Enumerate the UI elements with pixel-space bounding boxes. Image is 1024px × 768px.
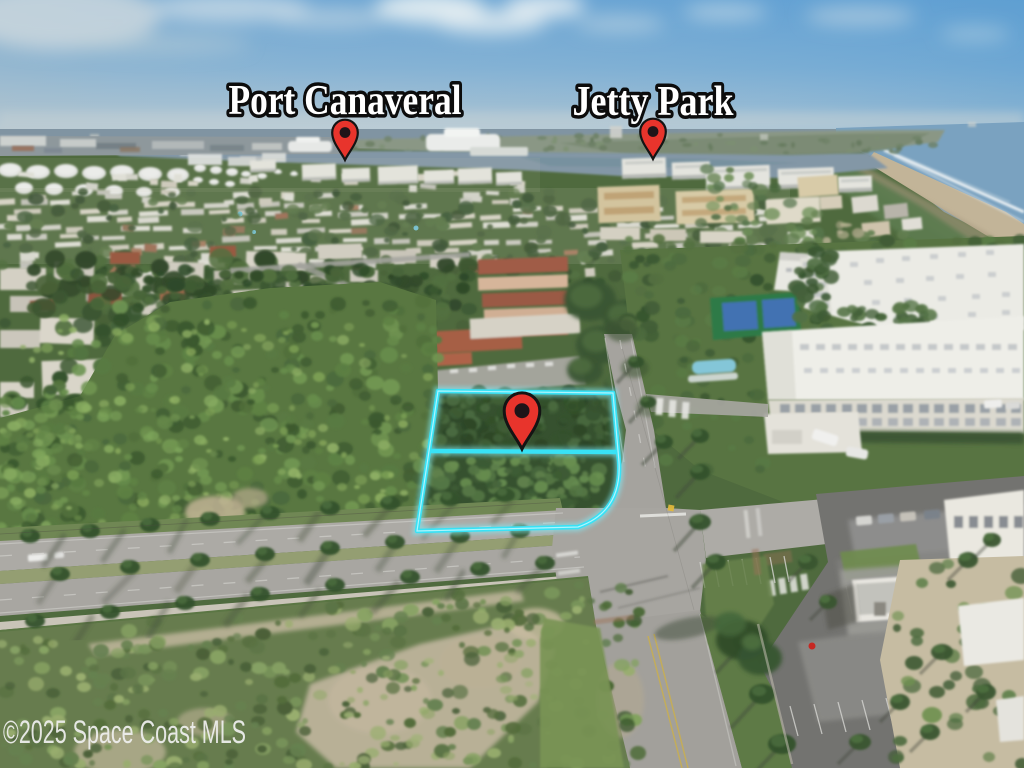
svg-text:©2025 Space Coast MLS: ©2025 Space Coast MLS bbox=[3, 714, 246, 750]
svg-text:Jetty Park: Jetty Park bbox=[573, 79, 735, 125]
svg-text:Port Canaveral: Port Canaveral bbox=[229, 78, 462, 124]
